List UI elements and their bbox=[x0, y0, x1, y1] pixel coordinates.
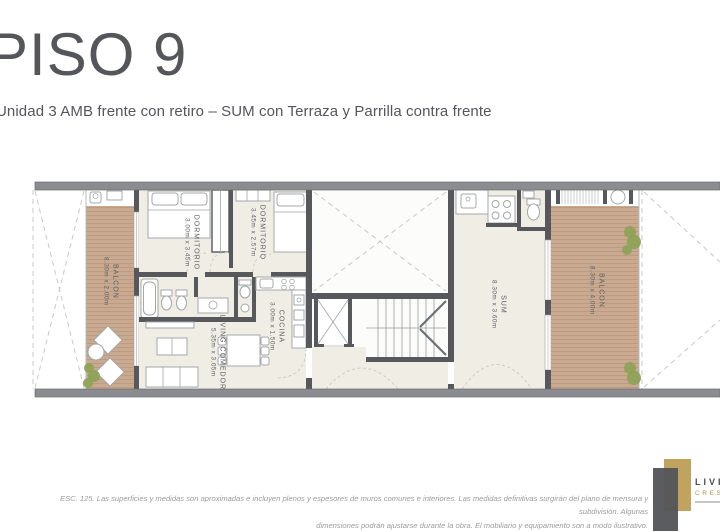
toilet-icon bbox=[528, 204, 540, 220]
disclaimer-text: ESC. 125. Las superficies y medidas son … bbox=[26, 492, 648, 532]
top-wall bbox=[35, 182, 720, 190]
chair-icon bbox=[261, 347, 269, 355]
fridge-icon bbox=[294, 325, 304, 337]
logo-subbrand-text: CRES bbox=[695, 490, 720, 497]
logo-tagline-rule bbox=[695, 501, 720, 503]
disclaimer-line2: dimensiones podrán ajustarse durante la … bbox=[316, 521, 648, 530]
ac-unit-icon bbox=[107, 191, 122, 200]
right-void-shaft bbox=[642, 190, 720, 389]
sink-icon bbox=[523, 191, 534, 198]
sum-room bbox=[454, 190, 545, 389]
balcony-left bbox=[83, 190, 134, 389]
toilet-icon bbox=[240, 286, 250, 298]
side-table-icon bbox=[88, 344, 104, 360]
floor-plan-drawing bbox=[0, 0, 720, 532]
chair-icon bbox=[261, 357, 269, 365]
floor-plan-page: PISO 9 Unidad 3 AMB frente con retiro – … bbox=[0, 0, 720, 532]
round-sink-icon bbox=[611, 190, 625, 204]
toilet-icon bbox=[162, 296, 172, 310]
sink-icon bbox=[260, 279, 273, 288]
disclaimer-line1: ESC. 125. Las superficies y medidas son … bbox=[60, 494, 648, 516]
sofa-icon bbox=[146, 367, 198, 387]
elevator bbox=[314, 299, 354, 347]
wall-bedrooms bbox=[229, 190, 233, 268]
wall-balcony-unit bbox=[134, 190, 139, 389]
balcony-right bbox=[551, 190, 641, 389]
wall-sum-balcony bbox=[545, 190, 551, 389]
vanity-icon bbox=[198, 298, 228, 313]
dining-table-icon bbox=[227, 335, 260, 366]
left-void-shaft bbox=[33, 190, 84, 389]
chair-icon bbox=[218, 357, 226, 365]
closet-icon bbox=[236, 190, 270, 201]
chair-icon bbox=[261, 337, 269, 345]
logo-dark-rectangle bbox=[653, 468, 678, 531]
logo-brand-text: LIVI bbox=[695, 477, 720, 487]
building-core bbox=[312, 190, 454, 389]
bottom-wall bbox=[35, 389, 720, 397]
cooktop-icon bbox=[488, 196, 515, 223]
oven-icon bbox=[294, 295, 304, 305]
chair-icon bbox=[218, 347, 226, 355]
bidet-icon bbox=[177, 296, 187, 310]
chair-icon bbox=[218, 337, 226, 345]
sink-icon bbox=[241, 304, 249, 312]
sideboard-icon bbox=[146, 322, 194, 328]
wall-core-sum bbox=[448, 190, 454, 389]
